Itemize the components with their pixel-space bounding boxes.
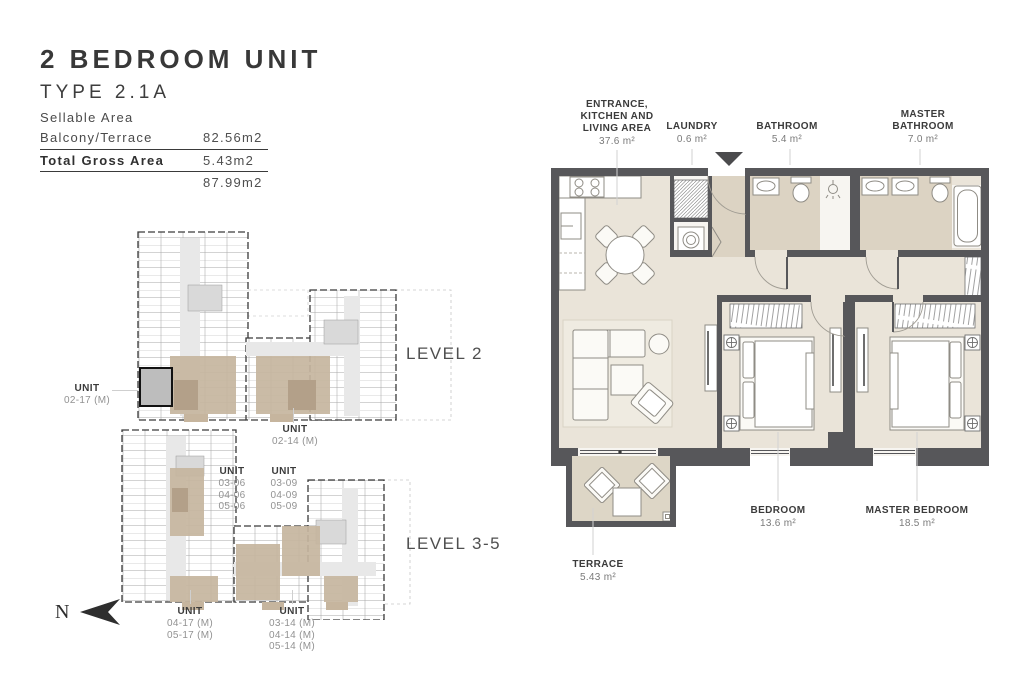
unit-label-title: UNIT bbox=[42, 383, 132, 394]
room-area: 18.5 m² bbox=[852, 518, 982, 529]
room-area: 5.43 m² bbox=[533, 572, 663, 583]
entrance-marker-icon bbox=[715, 152, 743, 166]
bedroom-wardrobe bbox=[730, 304, 802, 328]
unit-label-numbers: 02-17 (M) bbox=[42, 395, 132, 407]
unit-label-03-09: UNIT 03-09 04-09 05-09 bbox=[239, 466, 329, 513]
room-area: 7.0 m² bbox=[858, 134, 988, 145]
area-row-value: 82.56m2 bbox=[203, 130, 263, 145]
room-name: BATHROOM bbox=[722, 121, 852, 133]
level-2-key-plan bbox=[128, 230, 458, 425]
unit-label-02-14: UNIT 02-14 (M) bbox=[250, 424, 340, 448]
leader-line bbox=[112, 390, 138, 391]
level-3-5-label: LEVEL 3-5 bbox=[406, 534, 501, 554]
area-row-label: Total Gross Area bbox=[40, 153, 164, 168]
room-name: MASTER BATHROOM bbox=[858, 109, 988, 133]
leader-line bbox=[293, 408, 294, 423]
room-label-master-bedroom: MASTER BEDROOM 18.5 m² bbox=[852, 505, 982, 529]
unit-label-numbers: 03-09 04-09 05-09 bbox=[239, 478, 329, 513]
table-divider bbox=[40, 171, 268, 172]
room-label-master-bathroom: MASTER BATHROOM 7.0 m² bbox=[858, 109, 988, 145]
north-arrow-icon bbox=[80, 599, 120, 626]
unit-label-numbers: 03-14 (M) 04-14 (M) 05-14 (M) bbox=[247, 618, 337, 653]
master-wardrobe bbox=[895, 304, 975, 328]
area-row-balcony: Balcony/Terrace 82.56m2 bbox=[40, 130, 268, 150]
area-row-label: Balcony/Terrace bbox=[40, 130, 153, 145]
unit-label-title: UNIT bbox=[250, 424, 340, 435]
level-3-5-key-plan bbox=[112, 428, 412, 620]
leader-line bbox=[190, 590, 191, 604]
area-row-value: 5.43m2 bbox=[203, 153, 254, 168]
washing-machine bbox=[678, 227, 704, 253]
unit-label-title: UNIT bbox=[239, 466, 329, 477]
coffee-table bbox=[611, 365, 643, 395]
room-name: TERRACE bbox=[533, 559, 663, 571]
master-closet bbox=[965, 257, 981, 299]
room-area: 13.6 m² bbox=[713, 518, 843, 529]
unit-label-04-17: UNIT 04-17 (M) 05-17 (M) bbox=[145, 606, 235, 641]
table-divider bbox=[40, 149, 268, 150]
master-bed bbox=[890, 337, 964, 430]
area-row-grand: 87.99m2 bbox=[40, 175, 268, 195]
floor-plan-sheet: 2 BEDROOM UNIT TYPE 2.1A Sellable Area B… bbox=[0, 0, 1024, 682]
area-row-label: Sellable Area bbox=[40, 110, 134, 125]
area-row-value: 87.99m2 bbox=[203, 175, 263, 190]
unit-type-subtitle: TYPE 2.1A bbox=[40, 82, 170, 104]
unit-label-title: UNIT bbox=[145, 606, 235, 617]
level-2-label: LEVEL 2 bbox=[406, 344, 483, 364]
room-label-terrace: TERRACE 5.43 m² bbox=[533, 559, 663, 583]
highlight-unit-02-17 bbox=[140, 368, 172, 406]
room-label-bathroom: BATHROOM 5.4 m² bbox=[722, 121, 852, 145]
unit-label-title: UNIT bbox=[247, 606, 337, 617]
unit-label-02-17: UNIT 02-17 (M) bbox=[42, 383, 132, 407]
tv-unit-living bbox=[705, 325, 717, 391]
leader-line bbox=[292, 590, 293, 604]
area-row-sellable: Sellable Area bbox=[40, 110, 268, 130]
unit-label-numbers: 02-14 (M) bbox=[250, 436, 340, 448]
area-row-total: Total Gross Area 5.43m2 bbox=[40, 153, 268, 173]
room-name: MASTER BEDROOM bbox=[852, 505, 982, 517]
unit-label-numbers: 04-17 (M) 05-17 (M) bbox=[145, 618, 235, 641]
north-label: N bbox=[55, 601, 69, 624]
room-name: BEDROOM bbox=[713, 505, 843, 517]
page-title: 2 BEDROOM UNIT bbox=[40, 44, 321, 75]
tv-unit-master bbox=[857, 328, 868, 392]
tv-unit-bedroom bbox=[830, 328, 841, 392]
room-label-bedroom: BEDROOM 13.6 m² bbox=[713, 505, 843, 529]
unit-label-03-14: UNIT 03-14 (M) 04-14 (M) 05-14 (M) bbox=[247, 606, 337, 653]
room-area: 5.4 m² bbox=[722, 134, 852, 145]
bedroom-bed bbox=[740, 337, 814, 430]
side-table bbox=[649, 334, 669, 354]
laundry-closet bbox=[674, 180, 708, 218]
